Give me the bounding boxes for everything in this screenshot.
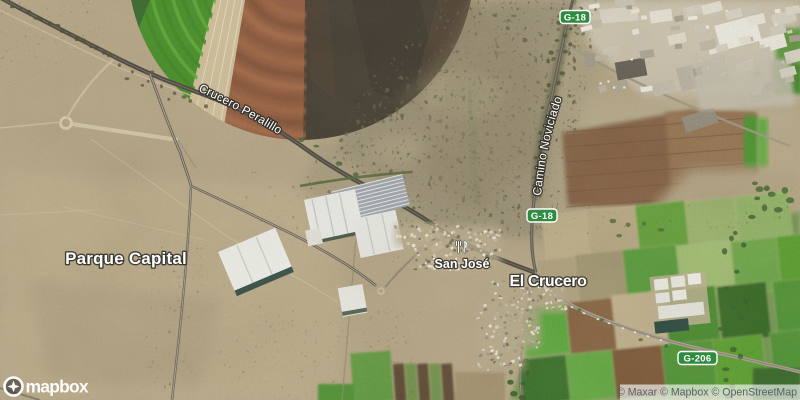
svg-text:G-18: G-18 [531, 211, 553, 222]
svg-text:© Maxar © Mapbox © OpenStreetM: © Maxar © Mapbox © OpenStreetMap [617, 387, 797, 399]
svg-text:San José: San José [435, 257, 490, 271]
svg-text:G-206: G-206 [684, 354, 712, 365]
svg-text:Parque Capital: Parque Capital [65, 249, 187, 268]
svg-text:G-18: G-18 [564, 13, 586, 24]
svg-text:mapbox: mapbox [26, 377, 89, 397]
svg-text:El Crucero: El Crucero [510, 273, 588, 290]
